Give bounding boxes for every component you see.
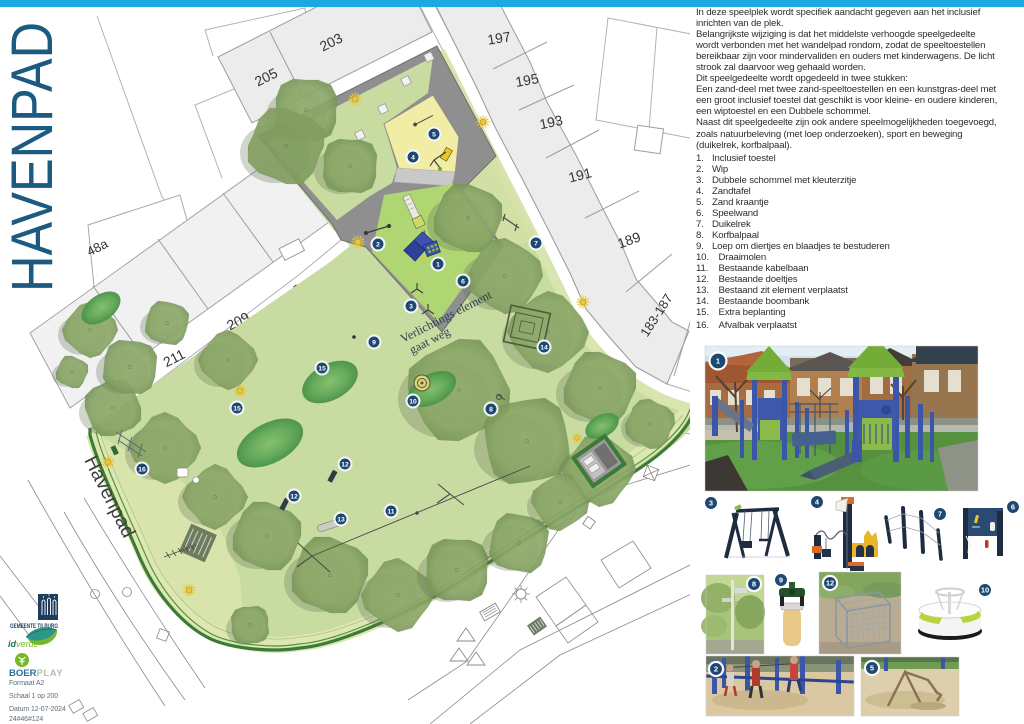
svg-text:2: 2	[714, 665, 718, 674]
svg-text:9: 9	[372, 339, 376, 346]
svg-text:HAVENPAD: HAVENPAD	[0, 22, 65, 292]
svg-text:15: 15	[233, 405, 241, 412]
svg-text:189: 189	[615, 228, 643, 251]
svg-text:2: 2	[376, 241, 380, 248]
svg-text:11: 11	[387, 508, 394, 515]
svg-text:4: 4	[411, 154, 415, 161]
svg-text:1: 1	[716, 357, 720, 366]
svg-text:5: 5	[432, 131, 436, 138]
svg-text:24#46#124: 24#46#124	[9, 716, 43, 723]
svg-text:15: 15	[318, 365, 326, 372]
svg-text:BOERPLAY: BOERPLAY	[9, 668, 63, 679]
svg-text:Formaat A2: Formaat A2	[9, 680, 44, 687]
svg-text:8: 8	[489, 406, 493, 413]
svg-text:7: 7	[938, 510, 942, 519]
svg-text:7: 7	[534, 240, 538, 247]
svg-text:6: 6	[1011, 503, 1015, 512]
svg-text:3: 3	[409, 303, 413, 310]
svg-text:3: 3	[709, 499, 713, 508]
svg-text:12: 12	[341, 461, 349, 468]
svg-text:10: 10	[409, 398, 417, 405]
svg-text:9: 9	[779, 576, 783, 585]
svg-text:5: 5	[870, 664, 874, 673]
svg-text:idverde: idverde	[8, 639, 39, 649]
svg-text:Datum 12-07-2024: Datum 12-07-2024	[9, 706, 66, 713]
svg-text:12: 12	[826, 579, 834, 588]
svg-text:14: 14	[540, 344, 548, 351]
svg-text:Schaal 1 op 200: Schaal 1 op 200	[9, 693, 58, 700]
svg-text:13: 13	[337, 516, 345, 523]
svg-text:10: 10	[981, 586, 989, 595]
svg-text:6: 6	[461, 278, 465, 285]
svg-text:16: 16	[138, 466, 146, 473]
svg-text:1: 1	[436, 261, 440, 268]
svg-text:8: 8	[752, 580, 756, 589]
svg-text:12: 12	[290, 493, 298, 500]
